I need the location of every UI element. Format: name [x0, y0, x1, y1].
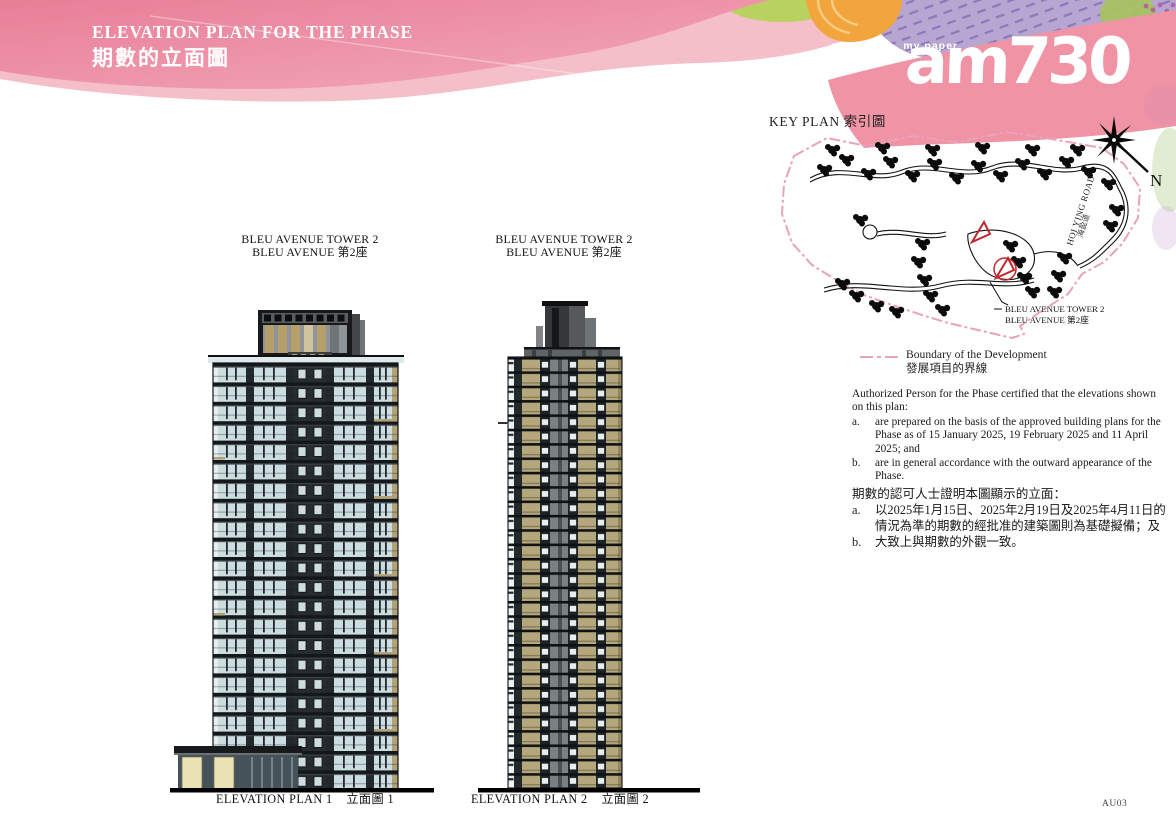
elevation-drawing-1: [168, 294, 440, 800]
cert-item-b-zh: b. 大致上與期數的外觀一致。: [852, 535, 1166, 550]
boundary-legend: Boundary of the Development 發展項目的界線: [906, 348, 1047, 375]
tower1-name: BLEU AVENUE TOWER 2 BLEU AVENUE 第2座: [200, 233, 420, 260]
boundary-legend-en: Boundary of the Development: [906, 348, 1047, 362]
cert-item-a-zh: a. 以2025年1月15日、2025年2月19日及2025年4月11日的情況為…: [852, 503, 1166, 534]
cert-item-a-en: a. are prepared on the basis of the appr…: [852, 416, 1166, 456]
page-code: AU03: [1102, 799, 1127, 809]
boundary-legend-line: [860, 356, 902, 358]
level-tick: [498, 422, 508, 424]
elevation2-caption: ELEVATION PLAN 2 立面圖 2: [440, 789, 680, 807]
north-label: N: [1150, 171, 1162, 190]
brochure-page: ELEVATION PLAN FOR THE PHASE 期數的立面圖 my c…: [0, 0, 1176, 828]
elevation-drawing-2: [472, 292, 708, 802]
map-callout-en: BLEU AVENUE TOWER 2: [1005, 304, 1104, 314]
cert-item-b-en: b. are in general accordance with the ou…: [852, 457, 1166, 484]
cert-intro-en: Authorized Person for the Phase certifie…: [852, 388, 1166, 415]
tower-location-markers: [972, 222, 1016, 280]
certification-block: Authorized Person for the Phase certifie…: [852, 388, 1166, 550]
elevation1-caption: ELEVATION PLAN 1 立面圖 1: [170, 789, 440, 807]
cert-intro-zh: 期數的認可人士證明本圖顯示的立面：: [852, 487, 1166, 502]
page-title-zh: 期數的立面圖: [92, 42, 230, 72]
page-title-en: ELEVATION PLAN FOR THE PHASE: [92, 22, 413, 43]
tower2-name: BLEU AVENUE TOWER 2 BLEU AVENUE 第2座: [454, 233, 674, 260]
boundary-legend-zh: 發展項目的界線: [906, 362, 1047, 376]
north-compass-icon: N: [1088, 112, 1172, 202]
map-callout-zh: BLEU AVENUE 第2座: [1005, 314, 1089, 325]
am730-logo: am730: [903, 30, 1129, 94]
tower1-canopy: [174, 746, 302, 753]
